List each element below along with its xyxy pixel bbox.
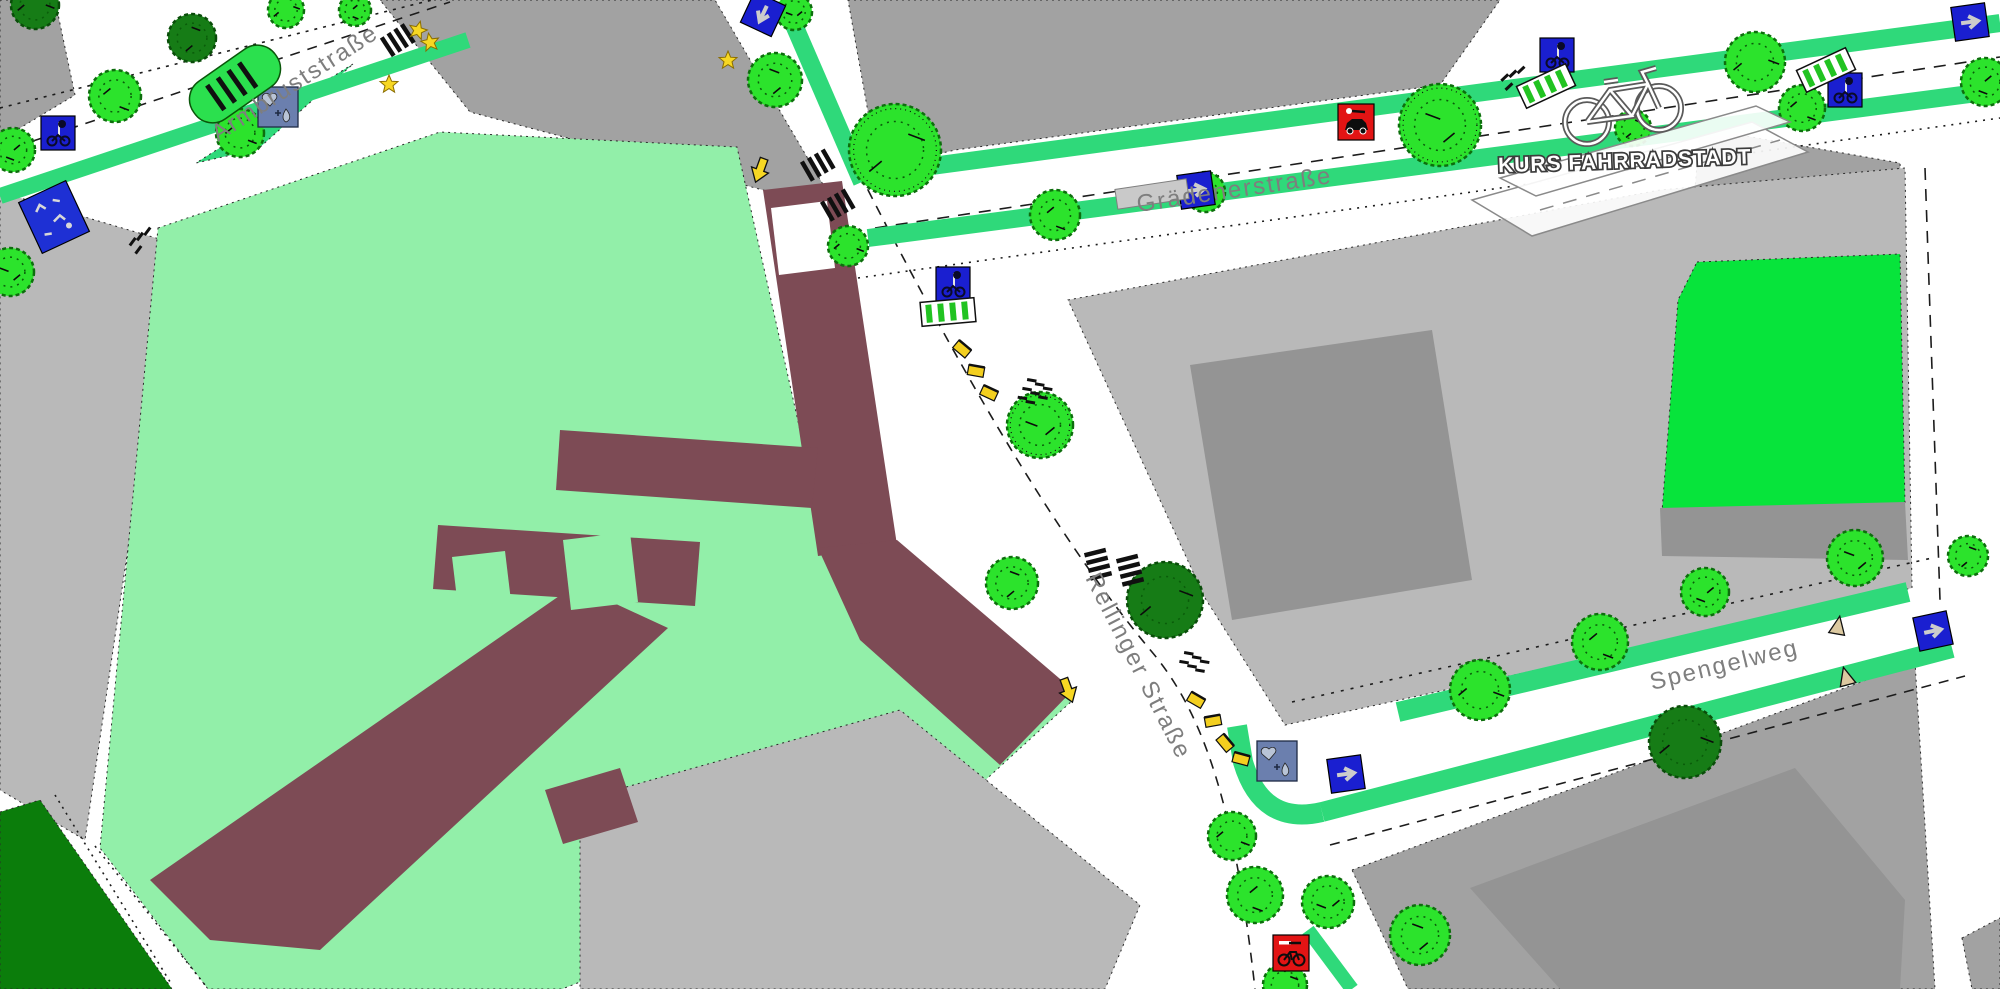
star-marker[interactable] bbox=[380, 75, 398, 92]
tree bbox=[1208, 812, 1256, 860]
tree-crown bbox=[1961, 58, 2000, 106]
tree bbox=[1681, 568, 1729, 616]
tree-crown bbox=[1649, 706, 1721, 778]
tree bbox=[748, 53, 802, 107]
tree bbox=[1390, 905, 1450, 965]
tree-crown bbox=[1681, 568, 1729, 616]
tree-crown bbox=[89, 70, 141, 122]
one-way-sign-icon[interactable] bbox=[1951, 3, 1989, 41]
one-way-sign-icon[interactable] bbox=[1327, 755, 1365, 793]
courtyard bbox=[452, 551, 511, 607]
tree bbox=[89, 70, 141, 122]
tree bbox=[1827, 530, 1883, 586]
bench bbox=[967, 365, 984, 378]
one-way-sign-icon[interactable] bbox=[1913, 611, 1953, 651]
tree-crown bbox=[1007, 392, 1073, 458]
tree bbox=[1030, 190, 1080, 240]
tree-crown bbox=[268, 0, 304, 28]
road-dashes bbox=[1179, 650, 1209, 674]
bike-signal-sign-icon[interactable] bbox=[41, 116, 75, 150]
tree bbox=[1961, 58, 2000, 106]
tree bbox=[268, 0, 304, 28]
bench bbox=[1204, 715, 1221, 728]
crosswalk bbox=[1116, 554, 1144, 587]
map-canvas[interactable]: ArmbruststraßeGrädenerstraßeRellinger St… bbox=[0, 0, 2000, 989]
tree bbox=[1302, 876, 1354, 928]
tree-crown bbox=[1572, 614, 1628, 670]
tree bbox=[0, 128, 35, 172]
bike-marker-sign-icon[interactable] bbox=[1273, 935, 1309, 971]
tree-crown bbox=[1302, 876, 1354, 928]
bench bbox=[980, 385, 999, 401]
tree bbox=[1007, 392, 1073, 458]
bike-lane bbox=[1308, 930, 1352, 989]
tree-crown bbox=[1948, 536, 1988, 576]
tree-crown bbox=[1399, 84, 1481, 166]
tree bbox=[1649, 706, 1721, 778]
tree-crown bbox=[1779, 85, 1825, 131]
tree bbox=[1450, 660, 1510, 720]
no-parking-sign-icon[interactable] bbox=[1338, 104, 1374, 140]
tree-crown bbox=[0, 128, 35, 172]
bike-signal-sign-icon[interactable] bbox=[936, 267, 970, 301]
tree-crown bbox=[1725, 32, 1785, 92]
tree bbox=[828, 226, 868, 266]
road-line bbox=[1925, 168, 1940, 600]
tree-crown bbox=[168, 14, 216, 62]
greening-sign-icon[interactable] bbox=[1257, 741, 1297, 781]
tree-crown bbox=[849, 104, 941, 196]
courtyard bbox=[563, 532, 638, 610]
tree-crown bbox=[828, 226, 868, 266]
building bbox=[1190, 330, 1472, 620]
tree-crown bbox=[1390, 905, 1450, 965]
tree-crown bbox=[1030, 190, 1080, 240]
tree bbox=[1572, 614, 1628, 670]
tree bbox=[1399, 84, 1481, 166]
tree-crown bbox=[1450, 660, 1510, 720]
bench bbox=[1187, 692, 1206, 709]
tree-crown bbox=[748, 53, 802, 107]
park-area bbox=[1662, 254, 1905, 512]
bike-rack bbox=[920, 298, 976, 327]
tree bbox=[986, 557, 1038, 609]
tree-crown bbox=[986, 557, 1038, 609]
tree-crown bbox=[1227, 867, 1283, 923]
tree bbox=[849, 104, 941, 196]
city-block bbox=[848, 0, 1500, 168]
tree bbox=[1779, 85, 1825, 131]
street-label-graedenerstrasse: Grädenerstraße bbox=[1135, 162, 1334, 218]
tree bbox=[1227, 867, 1283, 923]
city-block bbox=[1962, 918, 2000, 989]
tree bbox=[1725, 32, 1785, 92]
city-plan-map: ArmbruststraßeGrädenerstraßeRellinger St… bbox=[0, 0, 2000, 989]
tree bbox=[168, 14, 216, 62]
tree bbox=[1948, 536, 1988, 576]
tree-crown bbox=[1827, 530, 1883, 586]
tree-crown bbox=[1208, 812, 1256, 860]
one-way-sign-icon[interactable] bbox=[740, 0, 785, 37]
